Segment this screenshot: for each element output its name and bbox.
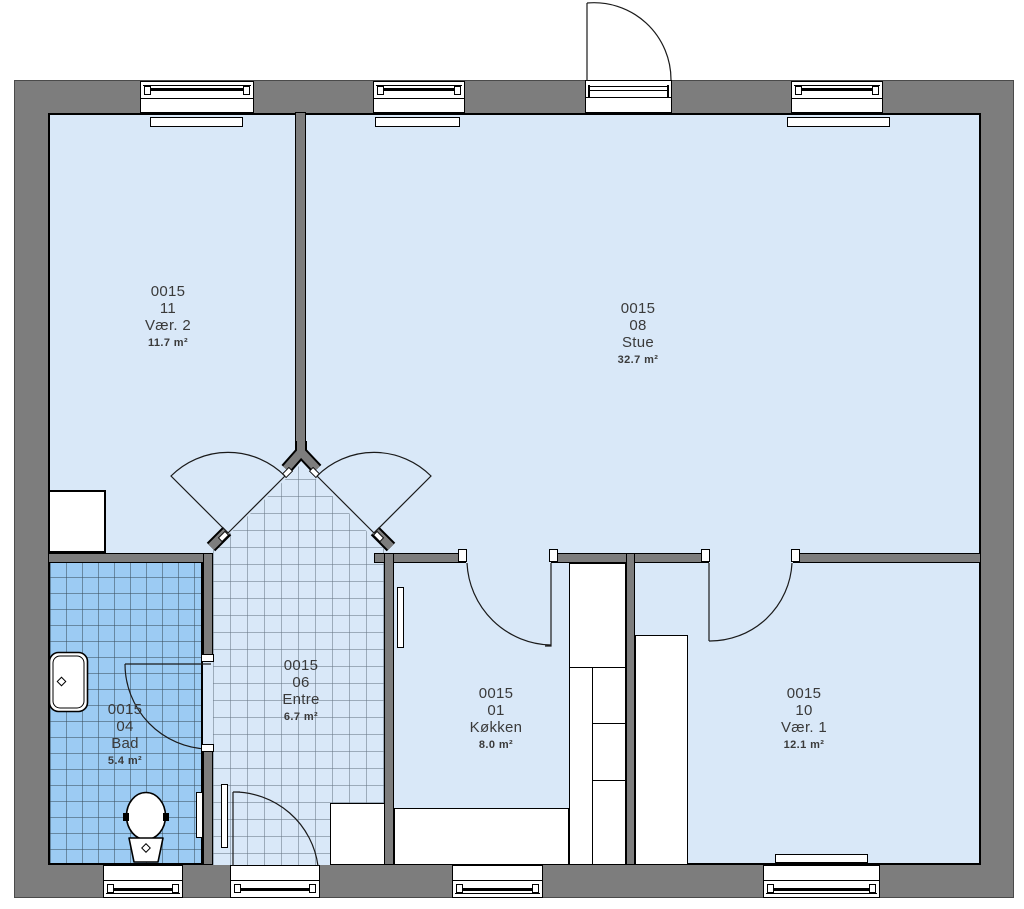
room-area: 8.0 m² xyxy=(426,737,566,754)
jamb-cap-bad-bottom xyxy=(201,744,214,752)
room-label-kokken: 0015 01 Køkken 8.0 m² xyxy=(426,685,566,754)
room-id: 08 xyxy=(568,317,708,334)
entre-diagonal-walls xyxy=(211,441,391,547)
jamb-cap-kokken-right xyxy=(549,549,558,562)
room-name: Entre xyxy=(231,691,371,708)
room-number: 0015 xyxy=(98,283,238,300)
jamb-cap-bad-top xyxy=(201,654,214,662)
room-label-stue: 0015 08 Stue 32.7 m² xyxy=(568,300,708,369)
room-name: Køkken xyxy=(426,719,566,736)
floor-plan: 0015 11 Vær. 2 11.7 m² 0015 08 Stue 32.7… xyxy=(0,0,1024,909)
entre-right-door-swing xyxy=(317,452,431,533)
room-name: Bad xyxy=(55,735,195,752)
room-name: Vær. 1 xyxy=(734,719,874,736)
room-id: 01 xyxy=(426,702,566,719)
room-id: 06 xyxy=(231,674,371,691)
room-name: Vær. 2 xyxy=(98,317,238,334)
room-label-vaer1: 0015 10 Vær. 1 12.1 m² xyxy=(734,685,874,754)
room-label-entre: 0015 06 Entre 6.7 m² xyxy=(231,657,371,726)
room-label-bad: 0015 04 Bad 5.4 m² xyxy=(55,701,195,770)
jamb-cap-vaer1-left xyxy=(701,549,710,562)
room-area: 11.7 m² xyxy=(98,335,238,352)
kokken-door-swing xyxy=(467,563,551,646)
room-number: 0015 xyxy=(568,300,708,317)
room-number: 0015 xyxy=(231,657,371,674)
toilet-icon xyxy=(123,793,169,863)
room-area: 12.1 m² xyxy=(734,737,874,754)
room-id: 10 xyxy=(734,702,874,719)
room-area: 6.7 m² xyxy=(231,709,371,726)
entre-left-door-swing xyxy=(171,452,285,533)
entrance-door-swing xyxy=(233,792,318,866)
plan-linework xyxy=(0,0,1024,909)
jamb-cap-kokken-left xyxy=(458,549,467,562)
jamb-cap-vaer1-right xyxy=(791,549,800,562)
room-name: Stue xyxy=(568,334,708,351)
room-number: 0015 xyxy=(734,685,874,702)
room-number: 0015 xyxy=(55,701,195,718)
room-label-vaer2: 0015 11 Vær. 2 11.7 m² xyxy=(98,283,238,352)
front-door-swing xyxy=(587,3,671,81)
room-id: 11 xyxy=(98,300,238,317)
room-number: 0015 xyxy=(426,685,566,702)
room-area: 32.7 m² xyxy=(568,352,708,369)
vaer1-door-swing xyxy=(709,563,792,641)
room-id: 04 xyxy=(55,718,195,735)
room-area: 5.4 m² xyxy=(55,753,195,770)
